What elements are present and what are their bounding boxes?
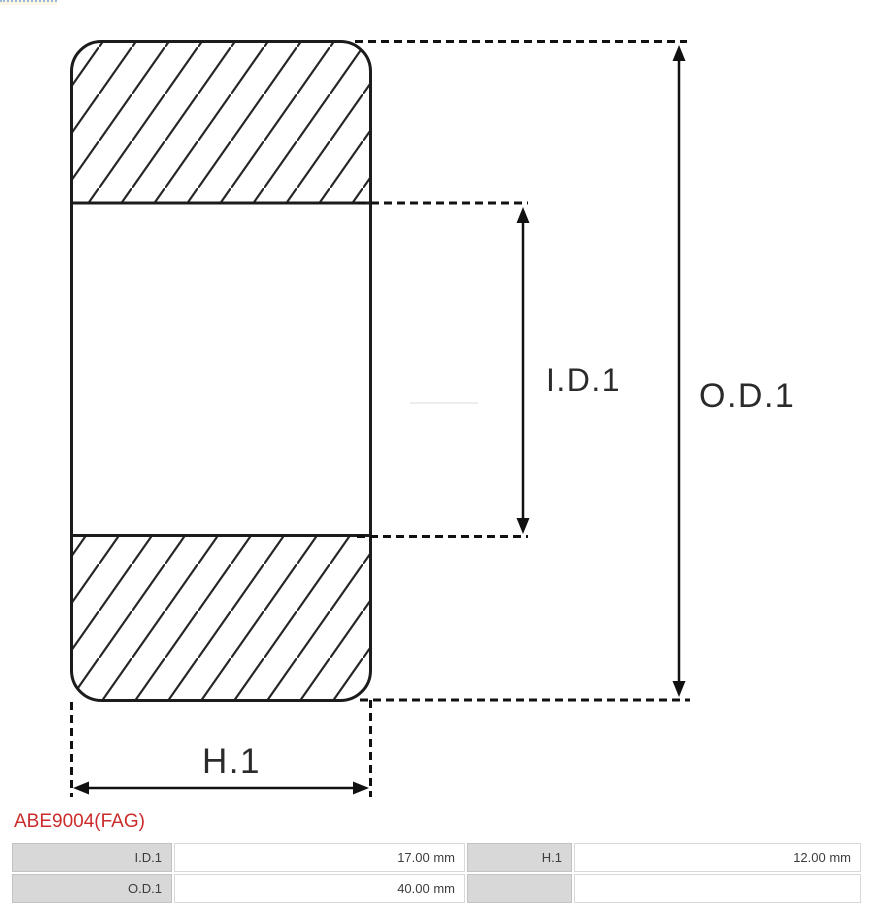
dimensions-table: I.D.1 17.00 mm H.1 12.00 mm O.D.1 40.00 … xyxy=(10,841,863,905)
dimension-value-cell: 40.00 mm xyxy=(174,874,465,903)
h-dimension-arrow xyxy=(73,782,369,795)
bearing-body xyxy=(72,42,371,701)
outer-diameter-label: O.D.1 xyxy=(699,377,795,416)
dimension-label-cell xyxy=(467,874,572,903)
page: I.D.1 O.D.1 H.1 ABE9004(FAG) I.D.1 17.00… xyxy=(0,0,871,913)
dimension-value-cell xyxy=(574,874,861,903)
watermark-line xyxy=(410,402,478,404)
table-row: O.D.1 40.00 mm xyxy=(12,874,861,903)
height-label: H.1 xyxy=(202,742,261,782)
id-dimension-arrow xyxy=(517,207,530,534)
dimension-value-cell: 12.00 mm xyxy=(574,843,861,872)
table-row: I.D.1 17.00 mm H.1 12.00 mm xyxy=(12,843,861,872)
hatch-band-bottom xyxy=(72,536,371,701)
dimension-label-cell: H.1 xyxy=(467,843,572,872)
dimension-value-cell: 17.00 mm xyxy=(174,843,465,872)
part-code: ABE9004(FAG) xyxy=(14,811,145,833)
dimension-label-cell: I.D.1 xyxy=(12,843,172,872)
dimension-label-cell: O.D.1 xyxy=(12,874,172,903)
od-dimension-arrow xyxy=(673,45,686,697)
inner-diameter-label: I.D.1 xyxy=(546,362,621,399)
hatch-band-top xyxy=(72,42,371,204)
